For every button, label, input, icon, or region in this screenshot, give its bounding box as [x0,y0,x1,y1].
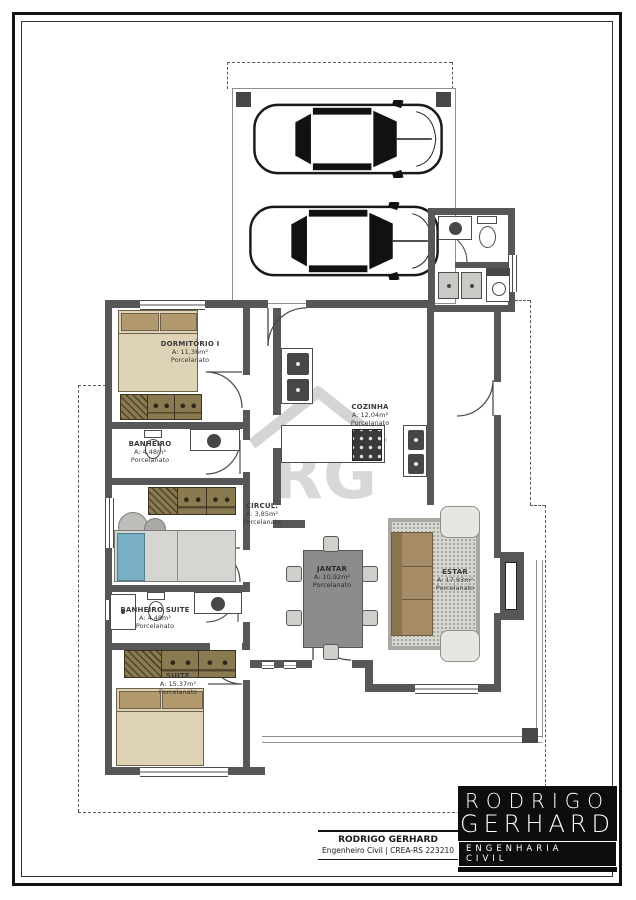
sink-icon [438,216,472,240]
window-icon [415,684,478,694]
room-label-dormitorio-1: DORMITÓRIO I A: 11,36m² Porcelanato [150,340,230,364]
kitchen-sink-icon [403,425,427,477]
brand-line-2: GERHARD [460,812,615,837]
car-icon [246,202,442,280]
chair-icon [362,610,378,626]
single-bed-icon [114,530,236,582]
wardrobe-icon [120,394,202,420]
washer-icon [486,268,510,302]
armchair-icon [440,630,480,662]
room-label-estar: ESTAR A: 17,93m² Porcelanato [415,568,495,592]
laundry-tank-icon [461,272,482,299]
pillar-icon [236,92,251,107]
room-label-jantar: JANTAR A: 10,92m² Porcelanato [297,565,367,589]
tv-icon [505,562,517,610]
floor-plan-sheet: RG [0,0,636,900]
double-bed-icon [116,688,204,766]
door-icon [206,372,242,408]
room-label-suite: SUITE A: 15,37m² Porcelanato [138,672,218,696]
stove-icon [352,429,382,461]
armchair-icon [440,506,480,538]
title-block: RODRIGO GERHARD Engenheiro Civil | CREA-… [318,830,458,860]
brand-line-3: ENGENHARIA CIVIL [458,841,617,867]
brand-logo: RODRIGO GERHARD ENGENHARIA CIVIL [458,786,617,872]
chair-icon [323,644,339,660]
room-label-circulacao: CIRCUL. A: 3,85m² Porcelanato [222,502,302,526]
room-label-banheiro-suite: BANHEIRO SUITE A: 4,48m² Porcelanato [105,606,205,630]
brand-line-1: RODRIGO [465,791,610,812]
kitchen-sink-icon [281,348,313,404]
engineer-name: RODRIGO GERHARD [318,835,458,845]
sink-icon [190,429,240,451]
chair-icon [323,536,339,552]
terrace-edge [262,736,542,743]
terrace-edge [536,560,543,738]
window-icon [140,767,228,777]
door-icon [457,380,493,416]
pillar-icon [522,728,538,743]
room-label-banheiro: BANHEIRO A: 4,48m² Porcelanato [105,440,195,464]
door-icon [268,308,306,346]
chair-icon [286,610,302,626]
window-icon [284,661,296,669]
laundry-tank-icon [438,272,459,299]
window-icon [262,661,274,669]
engineer-credentials: Engenheiro Civil | CREA-RS 223210 [318,846,458,855]
window-icon [140,300,205,310]
room-label-cozinha: COZINHA A: 12,04m² Porcelanato [330,403,410,427]
window-icon [105,498,114,548]
car-icon [250,100,446,178]
